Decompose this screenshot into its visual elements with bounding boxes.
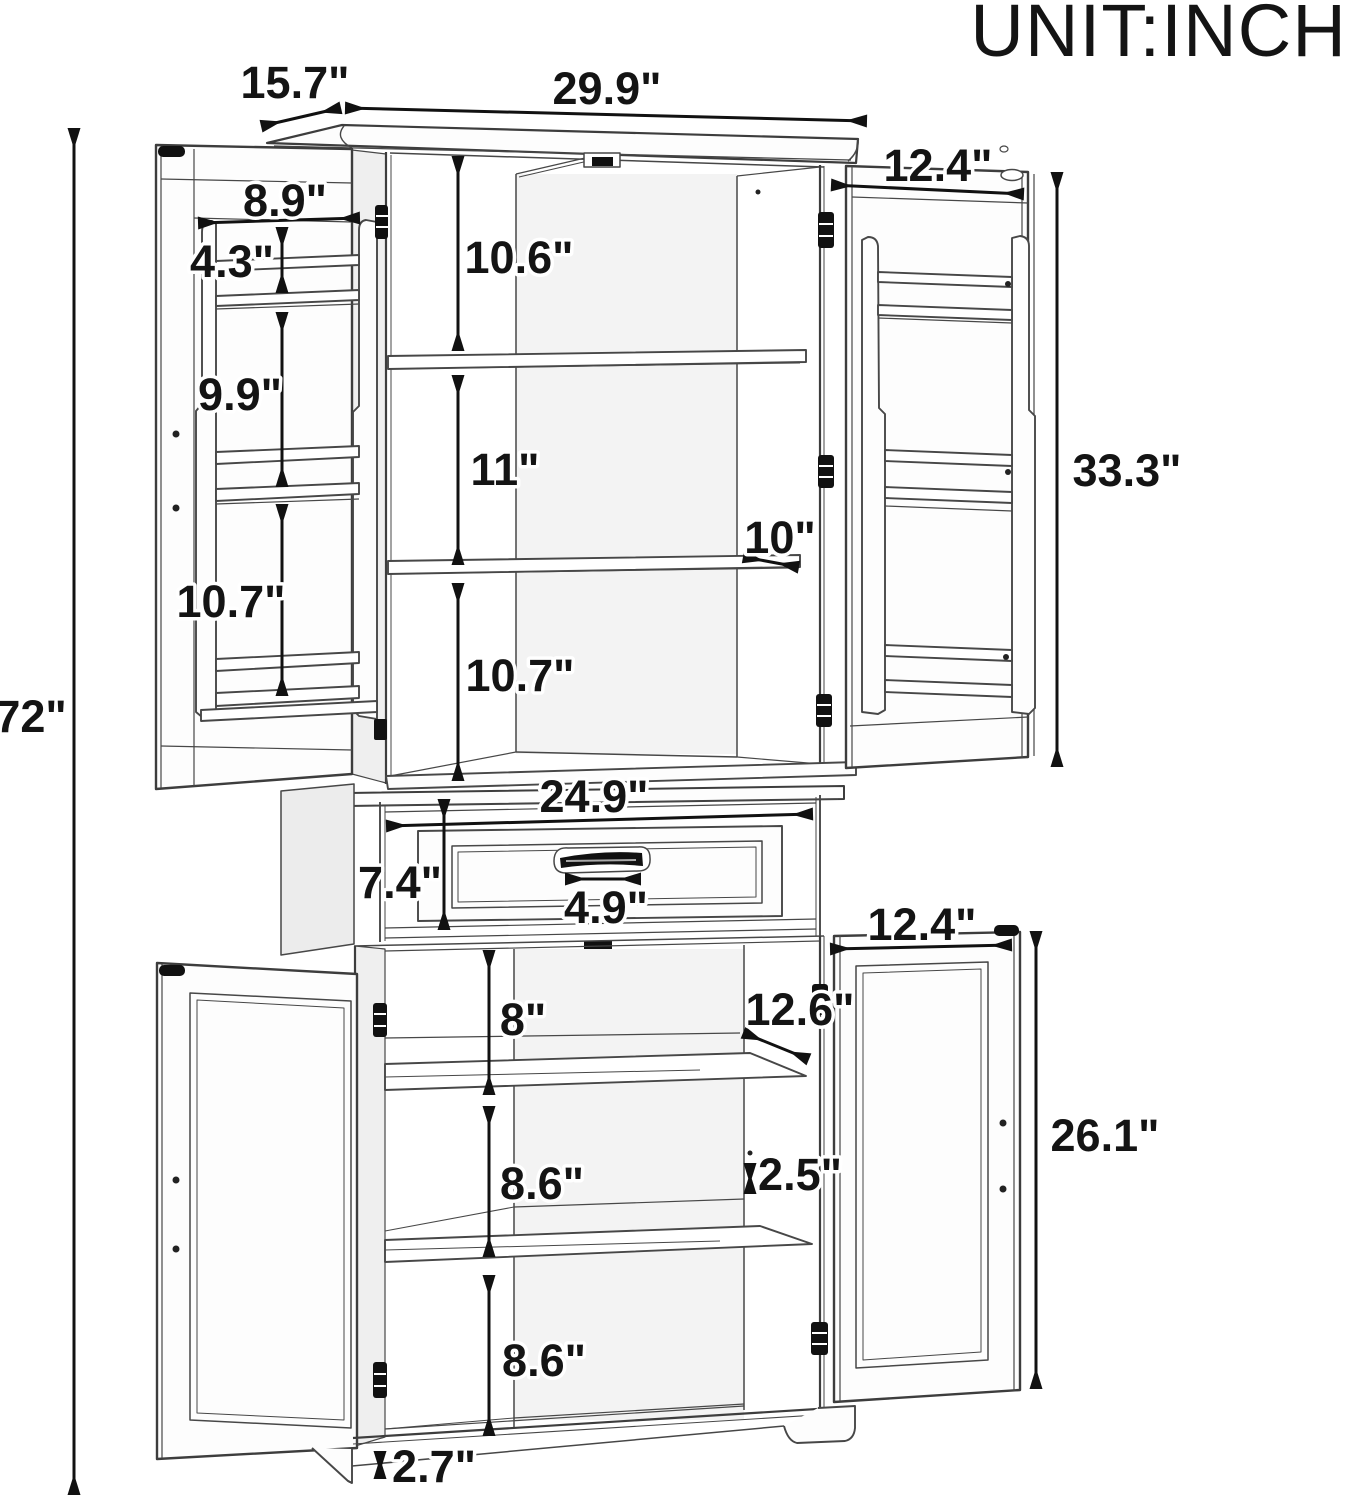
svg-text:2.5": 2.5" — [758, 1149, 842, 1200]
svg-text:15.7": 15.7" — [241, 57, 350, 108]
svg-text:10.7": 10.7" — [177, 576, 286, 627]
svg-text:12.6": 12.6" — [746, 984, 855, 1035]
svg-text:12.4": 12.4" — [868, 899, 977, 950]
svg-text:UNIT:INCH: UNIT:INCH — [970, 0, 1347, 72]
svg-text:8.9": 8.9" — [243, 175, 327, 226]
svg-text:7.4": 7.4" — [358, 857, 442, 908]
svg-text:72": 72" — [0, 691, 67, 742]
svg-text:8.6": 8.6" — [500, 1158, 584, 1209]
svg-text:33.3": 33.3" — [1073, 445, 1182, 496]
svg-text:26.1": 26.1" — [1051, 1110, 1160, 1161]
svg-text:10.7": 10.7" — [466, 650, 575, 701]
svg-text:12.4": 12.4" — [884, 140, 993, 191]
svg-text:24.9": 24.9" — [540, 771, 649, 822]
svg-text:10.6": 10.6" — [465, 232, 574, 283]
svg-text:9.9": 9.9" — [198, 369, 282, 420]
svg-text:8.6": 8.6" — [502, 1335, 586, 1386]
svg-text:4.3": 4.3" — [190, 236, 274, 287]
svg-text:29.9": 29.9" — [553, 63, 662, 114]
svg-text:2.7": 2.7" — [392, 1441, 476, 1492]
svg-text:10": 10" — [744, 512, 815, 563]
svg-text:8": 8" — [500, 994, 546, 1045]
svg-text:11": 11" — [471, 444, 540, 495]
svg-text:4.9": 4.9" — [564, 882, 648, 933]
